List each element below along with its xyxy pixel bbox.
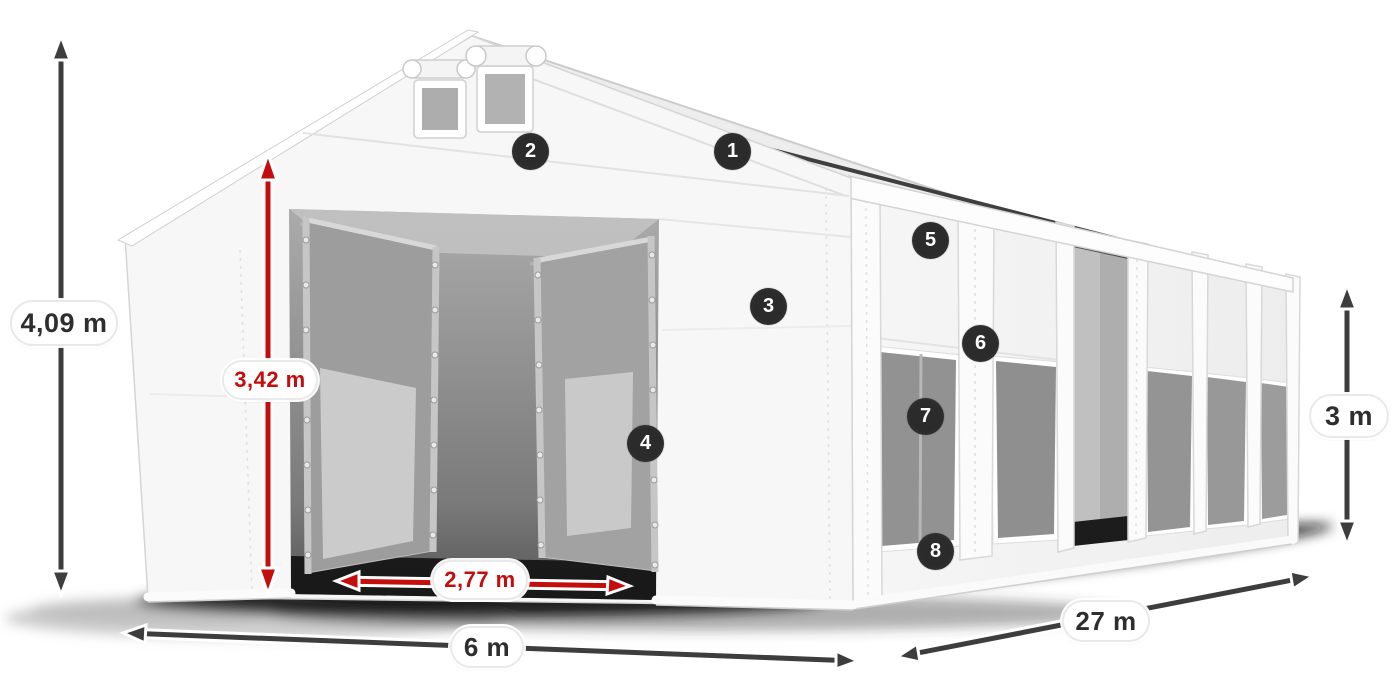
door-window-panel [565, 372, 633, 536]
dimension-label-door-height: 3,42 m [222, 360, 318, 400]
tent-illustration [0, 0, 1400, 700]
side-mesh-window [1203, 373, 1250, 529]
side-doorway-opening [1073, 237, 1128, 546]
callout-badge-2[interactable]: 2 [512, 133, 549, 170]
door-window-panel [320, 368, 416, 559]
callout-badge-6[interactable]: 6 [962, 325, 999, 362]
tent-diagram-canvas: 4,09 m 3,42 m 2,77 m 6 m 27 m 3 m 1 2 3 … [0, 0, 1400, 700]
dimension-label-total-height: 4,09 m [10, 300, 118, 346]
right-door-panel [534, 236, 658, 572]
dimension-label-side-height: 3 m [1309, 394, 1389, 438]
callout-badge-4[interactable]: 4 [627, 425, 664, 462]
side-mesh-window [991, 356, 1061, 544]
dimension-label-front-width: 6 m [450, 626, 524, 668]
left-door-panel [303, 217, 438, 574]
side-mesh-window [1143, 367, 1196, 536]
dimension-label-side-length: 27 m [1062, 600, 1150, 642]
callout-badge-1[interactable]: 1 [714, 133, 751, 170]
callout-badge-5[interactable]: 5 [912, 222, 949, 259]
side-mesh-window [874, 346, 962, 552]
callout-badge-3[interactable]: 3 [750, 288, 787, 325]
callout-badge-8[interactable]: 8 [917, 533, 954, 570]
callout-badge-7[interactable]: 7 [907, 398, 944, 435]
dimension-label-door-width: 2,77 m [432, 560, 528, 600]
